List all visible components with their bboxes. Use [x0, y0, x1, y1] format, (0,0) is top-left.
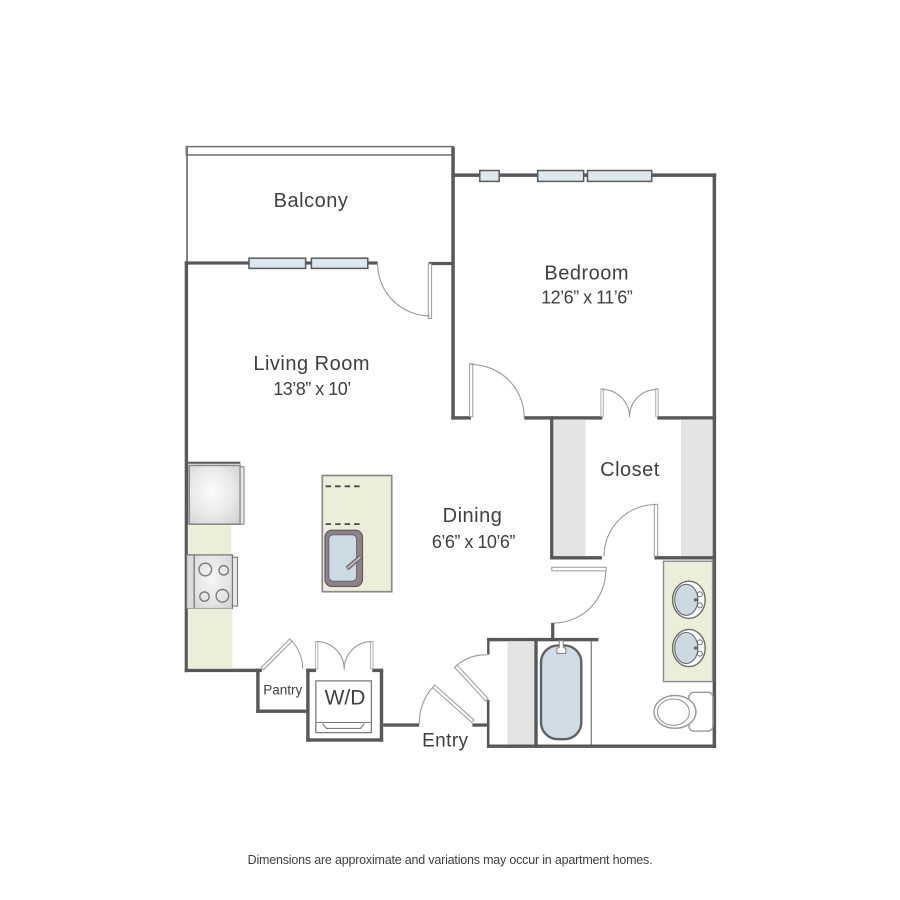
svg-text:W/D: W/D [325, 687, 366, 710]
svg-text:Entry: Entry [422, 731, 468, 752]
svg-text:13’8” x 10’: 13’8” x 10’ [273, 379, 351, 399]
svg-text:Living Room: Living Room [253, 353, 370, 375]
svg-text:Bedroom: Bedroom [544, 263, 629, 285]
svg-text:Dimensions are approximate and: Dimensions are approximate and variation… [248, 853, 653, 867]
svg-text:12’6” x 11’6”: 12’6” x 11’6” [541, 288, 633, 308]
svg-text:Dining: Dining [443, 505, 503, 527]
svg-text:6’6” x 10’6”: 6’6” x 10’6” [432, 532, 516, 552]
svg-text:Pantry: Pantry [263, 683, 302, 698]
svg-text:Balcony: Balcony [274, 190, 349, 212]
svg-text:Closet: Closet [600, 459, 660, 481]
